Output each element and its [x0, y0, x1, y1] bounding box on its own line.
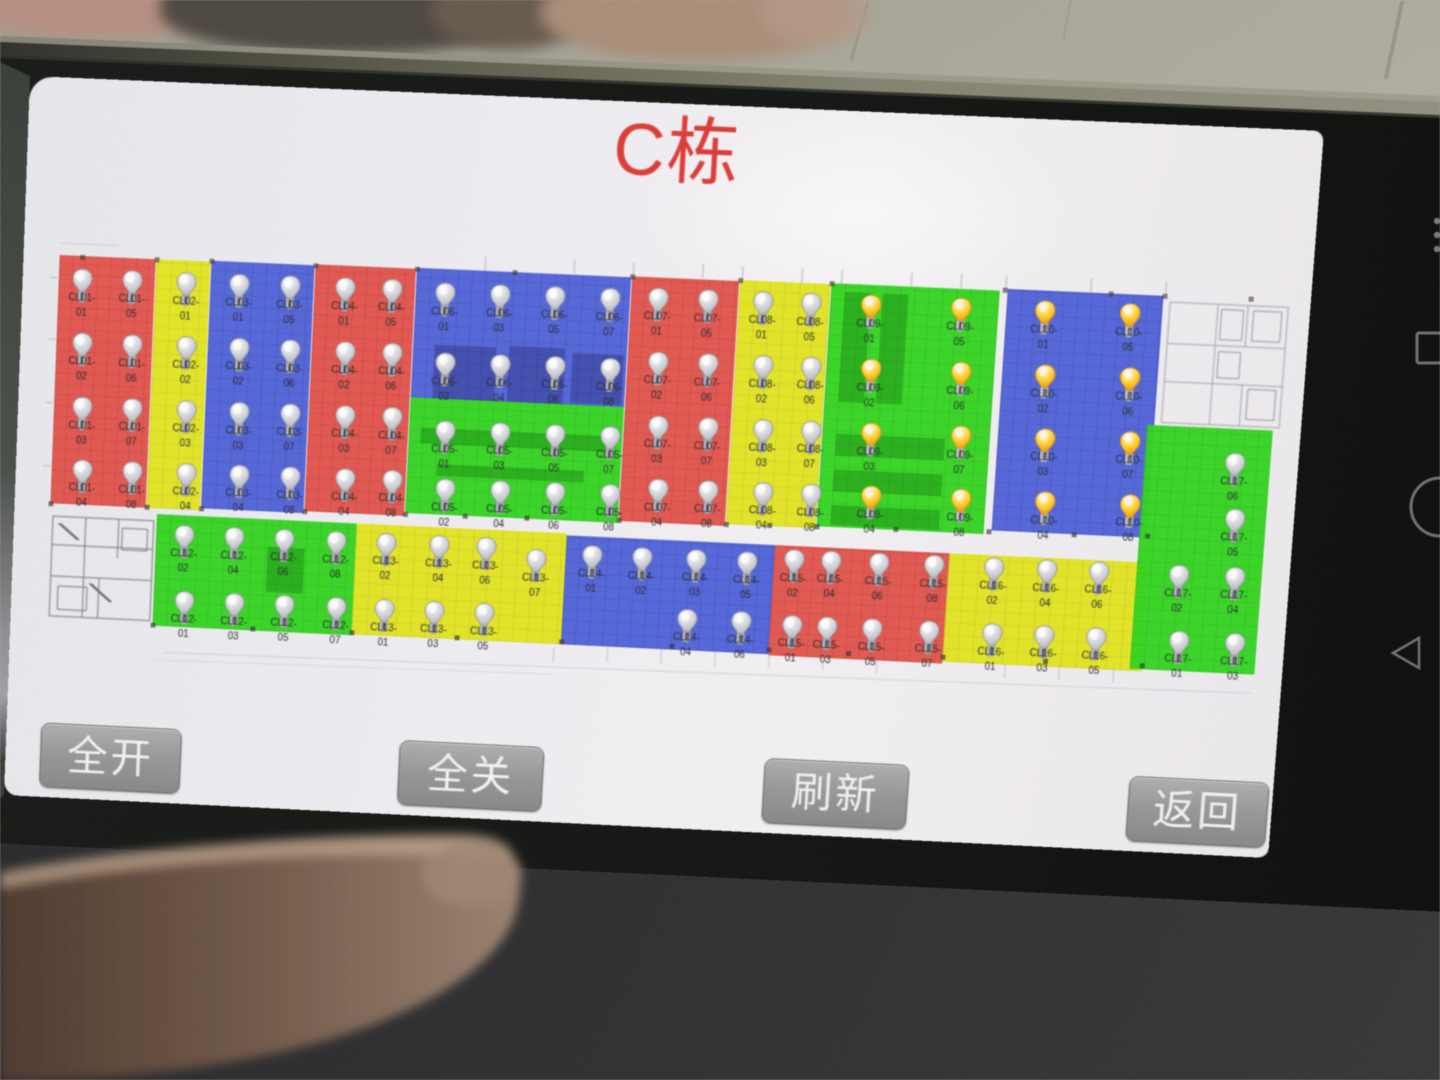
svg-text:CL01-05: CL01-05	[118, 294, 146, 321]
svg-text:CL05-07: CL05-07	[595, 449, 623, 476]
svg-text:CL06-02: CL06-02	[430, 376, 458, 403]
svg-text:CL09-06: CL09-06	[945, 385, 974, 412]
svg-text:CL08-05: CL08-05	[795, 316, 824, 343]
svg-text:CL14-05: CL14-05	[732, 575, 760, 602]
svg-text:CL06-07: CL06-07	[595, 312, 623, 339]
svg-text:CL15-07: CL15-07	[913, 644, 941, 671]
svg-text:CL17-01: CL17-01	[1163, 654, 1192, 681]
svg-text:CL16-03: CL16-03	[1028, 649, 1057, 676]
svg-text:CL10-08: CL10-08	[1114, 518, 1143, 545]
svg-text:CL04-03: CL04-03	[330, 429, 358, 456]
svg-text:CL09-04: CL09-04	[855, 509, 883, 536]
svg-text:CL14-03: CL14-03	[681, 573, 709, 600]
svg-text:CL05-06: CL05-06	[540, 506, 568, 533]
svg-text:CL06-04: CL06-04	[485, 378, 513, 405]
svg-text:CL10-05: CL10-05	[1114, 327, 1143, 354]
svg-text:CL04-04: CL04-04	[330, 492, 358, 519]
svg-text:CL15-05: CL15-05	[856, 642, 884, 669]
svg-text:CL12-07: CL12-07	[322, 620, 350, 647]
svg-text:CL15-06: CL15-06	[863, 576, 891, 603]
svg-text:CL08-06: CL08-06	[795, 380, 823, 407]
svg-text:CL05-05: CL05-05	[540, 448, 568, 475]
svg-text:CL03-07: CL03-07	[275, 427, 303, 454]
svg-text:CL10-04: CL10-04	[1029, 515, 1058, 542]
svg-text:CL06-01: CL06-01	[430, 306, 458, 333]
svg-text:CL16-04: CL16-04	[1031, 583, 1060, 610]
svg-text:CL03-06: CL03-06	[275, 363, 303, 390]
svg-text:CL10-03: CL10-03	[1029, 452, 1058, 479]
svg-text:CL05-01: CL05-01	[430, 444, 458, 471]
svg-text:CL06-05: CL06-05	[540, 310, 568, 337]
svg-text:CL08-08: CL08-08	[796, 507, 824, 534]
svg-text:CL09-07: CL09-07	[945, 449, 974, 476]
svg-text:CL15-04: CL15-04	[815, 574, 843, 601]
svg-text:CL01-07: CL01-07	[118, 422, 145, 449]
svg-text:CL03-01: CL03-01	[225, 297, 253, 324]
svg-text:CL02-03: CL02-03	[172, 424, 200, 451]
svg-text:CL13-02: CL13-02	[371, 556, 399, 583]
svg-text:CL12-02: CL12-02	[170, 548, 197, 575]
svg-text:CL06-03: CL06-03	[485, 308, 513, 335]
svg-text:CL12-08: CL12-08	[321, 554, 349, 581]
svg-text:CL05-03: CL05-03	[485, 446, 513, 473]
svg-text:CL01-08: CL01-08	[118, 485, 145, 512]
svg-text:CL07-06: CL07-06	[693, 377, 721, 404]
svg-text:CL13-04: CL13-04	[424, 558, 452, 585]
svg-text:CL04-05: CL04-05	[377, 303, 405, 330]
svg-text:CL02-04: CL02-04	[172, 486, 200, 513]
svg-text:CL14-02: CL14-02	[627, 570, 655, 597]
svg-text:CL12-06: CL12-06	[270, 552, 298, 579]
svg-text:CL02-01: CL02-01	[172, 296, 200, 323]
svg-text:CL08-02: CL08-02	[748, 379, 776, 406]
svg-text:CL15-08: CL15-08	[918, 578, 946, 605]
svg-text:CL08-01: CL08-01	[747, 315, 775, 342]
svg-text:CL16-01: CL16-01	[976, 646, 1005, 673]
svg-text:CL13-03: CL13-03	[419, 624, 447, 651]
svg-text:CL06-08: CL06-08	[595, 382, 623, 409]
svg-text:CL13-07: CL13-07	[521, 572, 549, 599]
svg-text:CL04-02: CL04-02	[330, 365, 358, 392]
svg-text:CL15-02: CL15-02	[779, 573, 807, 600]
svg-text:CL04-08: CL04-08	[377, 493, 405, 520]
svg-text:CL04-01: CL04-01	[330, 301, 358, 328]
svg-text:CL17-04: CL17-04	[1219, 590, 1248, 617]
svg-text:CL07-07: CL07-07	[693, 441, 721, 468]
svg-text:CL10-07: CL10-07	[1114, 455, 1143, 482]
svg-text:CL01-02: CL01-02	[68, 356, 95, 383]
svg-text:CL13-01: CL13-01	[369, 622, 397, 649]
svg-text:CL03-08: CL03-08	[276, 490, 304, 517]
svg-text:CL09-01: CL09-01	[855, 318, 884, 345]
svg-text:CL06-06: CL06-06	[540, 380, 568, 407]
svg-text:CL14-04: CL14-04	[672, 632, 700, 659]
svg-text:CL07-08: CL07-08	[693, 504, 721, 531]
svg-text:CL05-04: CL05-04	[485, 504, 513, 531]
svg-text:CL15-03: CL15-03	[812, 640, 840, 667]
svg-text:CL01-01: CL01-01	[68, 292, 96, 319]
svg-text:CL16-06: CL16-06	[1083, 585, 1112, 612]
svg-text:CL05-02: CL05-02	[430, 502, 458, 529]
svg-text:CL10-06: CL10-06	[1114, 391, 1143, 418]
svg-text:CL17-02: CL17-02	[1163, 588, 1192, 615]
svg-text:CL12-04: CL12-04	[220, 550, 248, 577]
svg-text:CL03-03: CL03-03	[225, 425, 253, 452]
svg-text:CL12-03: CL12-03	[220, 616, 247, 643]
svg-text:CL04-07: CL04-07	[377, 430, 405, 457]
svg-text:CL09-02: CL09-02	[855, 382, 884, 409]
svg-text:CL15-01: CL15-01	[777, 638, 805, 665]
svg-text:CL07-02: CL07-02	[643, 375, 671, 402]
svg-text:CL07-01: CL07-01	[643, 311, 671, 338]
svg-text:CL08-07: CL08-07	[795, 444, 823, 471]
svg-text:CL16-02: CL16-02	[978, 581, 1007, 608]
svg-text:CL16-05: CL16-05	[1080, 651, 1109, 678]
svg-text:CL12-01: CL12-01	[170, 614, 197, 641]
svg-text:CL08-04: CL08-04	[748, 506, 776, 533]
svg-text:CL10-01: CL10-01	[1029, 324, 1058, 351]
svg-text:CL13-06: CL13-06	[471, 560, 499, 587]
svg-text:CL08-03: CL08-03	[748, 443, 776, 470]
svg-text:CL17-05: CL17-05	[1219, 532, 1248, 559]
svg-text:CL09-05: CL09-05	[945, 321, 974, 348]
svg-text:CL03-04: CL03-04	[225, 488, 253, 515]
svg-text:CL01-06: CL01-06	[118, 358, 146, 385]
svg-text:CL14-06: CL14-06	[726, 634, 754, 661]
svg-text:CL02-02: CL02-02	[172, 360, 200, 387]
svg-text:CL03-05: CL03-05	[275, 299, 303, 326]
svg-text:CL04-06: CL04-06	[377, 366, 405, 393]
svg-text:CL14-01: CL14-01	[577, 568, 605, 595]
svg-text:CL13-05: CL13-05	[469, 626, 497, 653]
svg-text:CL03-02: CL03-02	[225, 361, 253, 388]
svg-text:CL10-02: CL10-02	[1029, 388, 1058, 415]
svg-text:CL07-04: CL07-04	[643, 502, 671, 529]
svg-text:CL07-03: CL07-03	[643, 439, 671, 466]
svg-text:CL09-03: CL09-03	[855, 446, 884, 473]
svg-text:CL09-08: CL09-08	[945, 512, 974, 539]
svg-text:CL07-05: CL07-05	[693, 313, 721, 340]
svg-text:CL01-04: CL01-04	[68, 483, 95, 510]
svg-text:CL01-03: CL01-03	[68, 420, 95, 447]
svg-text:CL12-05: CL12-05	[270, 618, 298, 645]
svg-text:CL17-03: CL17-03	[1219, 656, 1248, 683]
svg-text:CL17-06: CL17-06	[1219, 476, 1248, 503]
